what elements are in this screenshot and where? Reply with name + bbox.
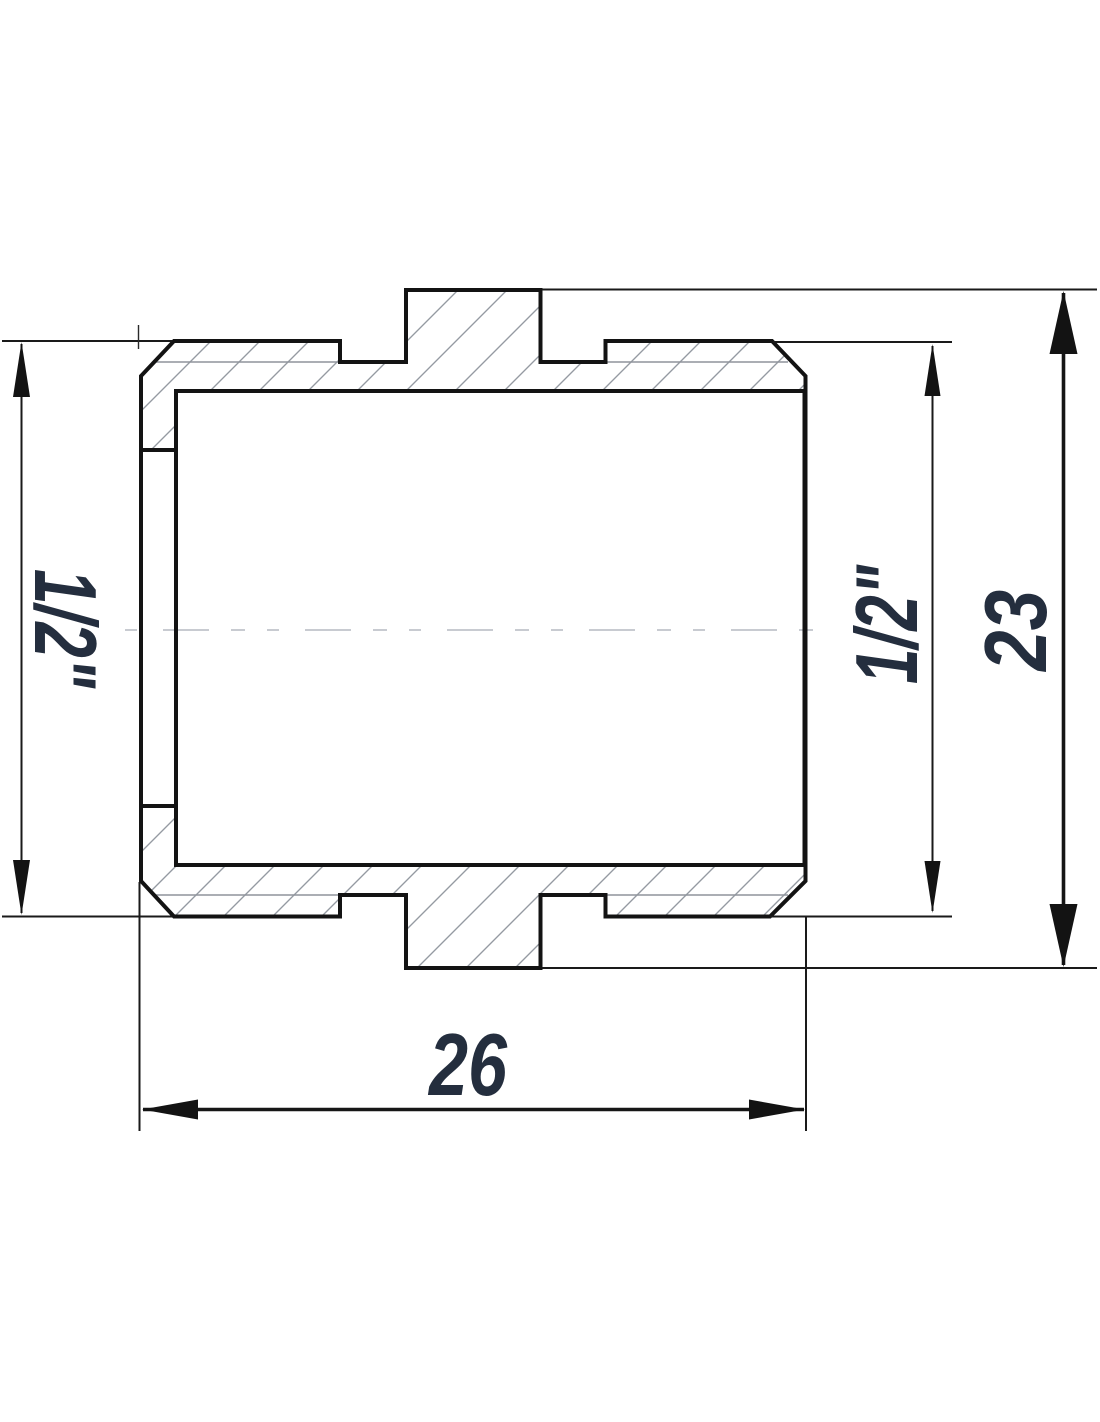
svg-text:1/2": 1/2" [837, 564, 936, 684]
svg-text:1/2": 1/2" [16, 569, 115, 689]
svg-text:23: 23 [966, 590, 1065, 673]
svg-text:26: 26 [427, 1015, 507, 1114]
